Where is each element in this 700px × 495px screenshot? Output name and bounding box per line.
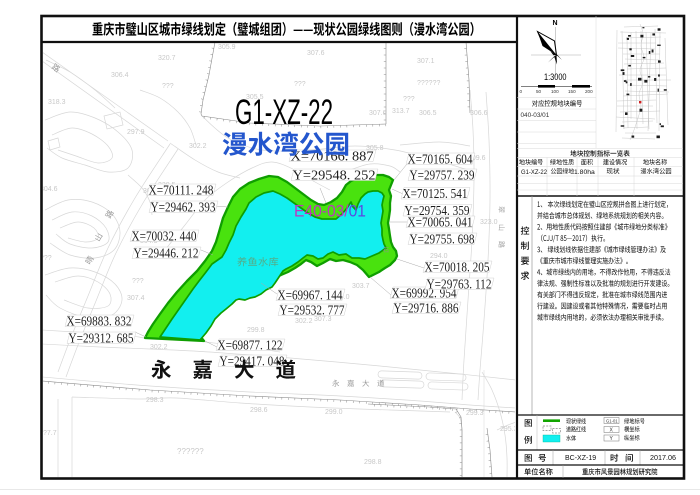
svg-text:302.2: 302.2 xyxy=(295,318,313,325)
svg-text:306.5: 306.5 xyxy=(419,110,437,117)
svg-text:E40-03/01: E40-03/01 xyxy=(294,202,366,221)
svg-text:307.1: 307.1 xyxy=(417,58,435,65)
svg-text:302.2: 302.2 xyxy=(189,143,207,150)
svg-text:Y=29532. 777: Y=29532. 777 xyxy=(280,303,345,318)
svg-text:307.4: 307.4 xyxy=(127,295,145,302)
svg-text:313.7: 313.7 xyxy=(392,108,410,115)
svg-text:200: 200 xyxy=(585,89,593,94)
svg-text:297.9: 297.9 xyxy=(127,129,145,136)
svg-text:?7.7: ?7.7 xyxy=(43,430,57,437)
svg-text:318.3: 318.3 xyxy=(48,99,66,106)
svg-text:298.6: 298.6 xyxy=(250,407,268,414)
svg-text:X=70125. 541: X=70125. 541 xyxy=(403,186,468,201)
svg-text:307.6: 307.6 xyxy=(369,110,387,117)
svg-text:Y=29754. 359: Y=29754. 359 xyxy=(405,203,470,218)
svg-text:???: ??? xyxy=(132,278,144,285)
svg-text:G1-XZ-22: G1-XZ-22 xyxy=(521,169,547,176)
svg-text:295.3: 295.3 xyxy=(500,426,518,433)
svg-text:X=69967. 144: X=69967. 144 xyxy=(278,288,343,303)
svg-text:X=70032. 440: X=70032. 440 xyxy=(132,229,197,244)
svg-text:X=70018. 205: X=70018. 205 xyxy=(425,260,490,275)
svg-text:298.8: 298.8 xyxy=(364,459,382,466)
svg-text:Y=29312. 685: Y=29312. 685 xyxy=(69,331,134,346)
svg-text:2017.06: 2017.06 xyxy=(650,453,676,462)
svg-text:N: N xyxy=(553,20,558,27)
svg-text:X=69877. 122: X=69877. 122 xyxy=(218,338,283,353)
svg-text:G1-01: G1-01 xyxy=(606,418,618,423)
svg-text:X=70165. 604: X=70165. 604 xyxy=(408,152,473,167)
svg-text:???: ??? xyxy=(403,96,415,103)
svg-text:X=69883. 832: X=69883. 832 xyxy=(67,314,132,329)
svg-text:323.0: 323.0 xyxy=(480,219,498,226)
svg-text:???: ??? xyxy=(162,83,174,90)
svg-text:305.9: 305.9 xyxy=(218,44,236,51)
svg-text:Y=29716. 886: Y=29716. 886 xyxy=(394,301,459,316)
svg-text:100: 100 xyxy=(551,89,559,94)
svg-text:Y=29763. 112: Y=29763. 112 xyxy=(427,277,492,292)
svg-text:298.3: 298.3 xyxy=(146,397,164,404)
svg-text:???: ??? xyxy=(294,81,306,88)
svg-text:BC-XZ-19: BC-XZ-19 xyxy=(565,455,596,462)
svg-text:307.6: 307.6 xyxy=(307,50,325,57)
svg-text:G1-XZ-22: G1-XZ-22 xyxy=(235,93,333,132)
svg-text:Y=29757. 239: Y=29757. 239 xyxy=(410,168,475,183)
svg-text:299.3: 299.3 xyxy=(466,410,484,417)
svg-text:X=70111. 248: X=70111. 248 xyxy=(149,183,214,198)
svg-text:??????: ?????? xyxy=(417,80,440,87)
svg-text:Y=29755. 698: Y=29755. 698 xyxy=(410,232,475,247)
svg-text:1:3000: 1:3000 xyxy=(544,72,567,82)
svg-text:302.2: 302.2 xyxy=(150,344,168,351)
svg-text:Y=29548. 252: Y=29548. 252 xyxy=(293,168,376,183)
svg-text:299.0: 299.0 xyxy=(325,409,343,416)
svg-text:??????: ?????? xyxy=(177,447,204,456)
svg-text:306.4: 306.4 xyxy=(111,72,129,79)
svg-text:040-03/01: 040-03/01 xyxy=(521,112,550,119)
svg-text:0: 0 xyxy=(520,89,523,94)
svg-text:1.80ha: 1.80ha xyxy=(574,169,595,176)
svg-text:50: 50 xyxy=(536,89,542,94)
svg-text:306.6: 306.6 xyxy=(470,110,488,117)
svg-text:303.7: 303.7 xyxy=(352,283,370,290)
svg-text:Y=29462. 393: Y=29462. 393 xyxy=(151,200,216,215)
svg-text:299.8: 299.8 xyxy=(247,327,265,334)
svg-text:320.7: 320.7 xyxy=(158,55,176,62)
svg-text:150: 150 xyxy=(568,89,576,94)
svg-text:Y=29446. 212: Y=29446. 212 xyxy=(134,246,199,261)
